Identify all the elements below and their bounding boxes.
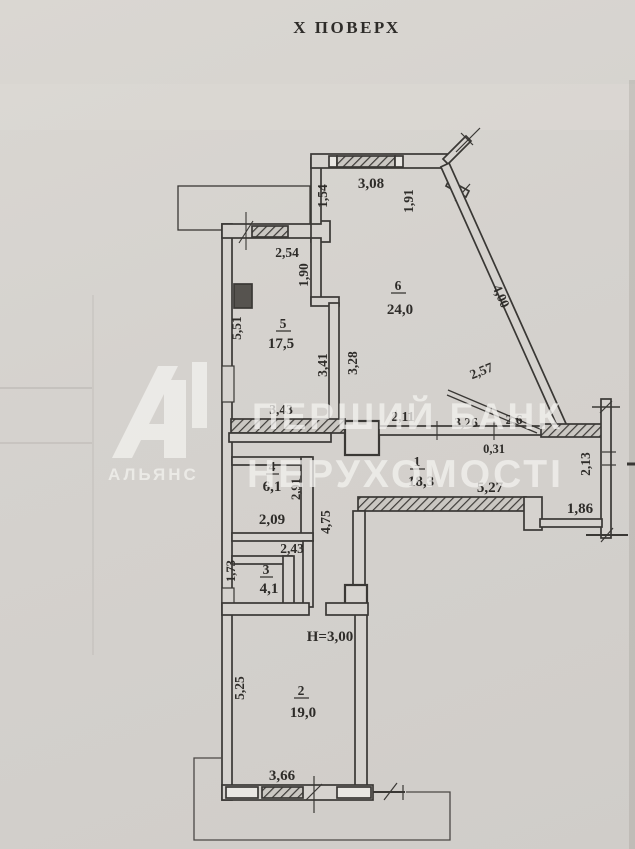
dim-room4-bottom: 2,09 (259, 512, 285, 528)
watermark-line-2: НЕРУХОМОСТІ (247, 453, 564, 496)
room-2-number: 2 (298, 683, 305, 698)
window-room6 (337, 156, 395, 167)
room-2-area: 19,0 (290, 705, 316, 721)
floor-plan-drawing: Х ПОВЕРХ (0, 0, 635, 849)
room-6-area: 24,0 (387, 302, 413, 318)
dim-room2-left: 5,25 (232, 676, 247, 700)
dim-niche-bottom: 1,86 (567, 501, 594, 517)
dim-room3-left: 1,73 (224, 560, 238, 582)
ceiling-height-label: Н=3,00 (307, 629, 353, 645)
dim-room6-window: 3,08 (358, 176, 384, 192)
window-room5 (252, 226, 288, 237)
dim-room5-left: 5,51 (229, 316, 244, 340)
dim-room5-window: 2,54 (275, 245, 299, 260)
page-title: Х ПОВЕРХ (293, 18, 400, 37)
room-5-number: 5 (280, 316, 287, 331)
dim-room3-top: 2,43 (280, 541, 304, 556)
dim-niche-right: 2,13 (578, 452, 593, 476)
dim-room6-right-upper: 1,91 (401, 189, 416, 213)
dim-room6-left-lower: 3,28 (345, 351, 360, 375)
dim-room5-right-upper: 1,90 (296, 263, 311, 287)
dim-hall-leg: 4,75 (318, 510, 333, 534)
room-5-area: 17,5 (268, 336, 294, 352)
watermark-logo-name: АЛЬЯНС (108, 465, 199, 484)
alliance-logo-letter (112, 362, 207, 458)
vent-shaft (234, 284, 252, 308)
room-3-area: 4,1 (260, 581, 279, 597)
watermark-line-1: ПЕРШИЙ БАНК (252, 395, 563, 437)
room-6-number: 6 (395, 278, 402, 293)
dim-room2-window: 3,66 (269, 768, 296, 784)
dim-room6-left-upper: 1,54 (315, 184, 330, 208)
room-3-number: 3 (263, 562, 270, 577)
window-room2 (262, 787, 303, 798)
dim-room6-diagonal-cut: 2,57 (468, 359, 496, 382)
dim-room5-right-lower: 3,41 (315, 353, 330, 377)
scanned-floor-plan-page: Х ПОВЕРХ (0, 0, 635, 849)
